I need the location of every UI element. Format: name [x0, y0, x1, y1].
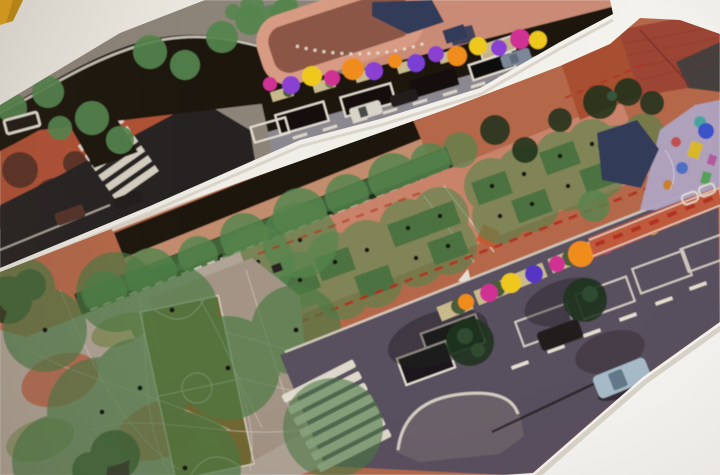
art-shape: [698, 123, 714, 139]
umbrella-dot: [263, 77, 277, 91]
tree-canopy: [347, 252, 403, 308]
umbrella-dot: [302, 66, 322, 86]
umbrella-dot: [510, 29, 530, 49]
tree-canopy: [75, 101, 109, 135]
umbrella-dot: [529, 31, 547, 49]
umbrella-dot: [458, 294, 474, 310]
umbrella-dot: [282, 76, 300, 94]
umbrella-dot: [365, 62, 383, 80]
tree-highlight: [582, 286, 598, 302]
umbrella-dot: [324, 70, 340, 86]
umbrella-dot: [447, 46, 467, 66]
tree-highlight: [471, 343, 485, 357]
tree-canopy: [106, 126, 134, 154]
umbrella-dot: [549, 256, 565, 272]
photo-of-printed-plans: [0, 0, 720, 475]
umbrella-dot: [491, 40, 507, 56]
tree-canopy: [170, 50, 200, 80]
tree-canopy: [32, 76, 64, 108]
tree-canopy: [76, 252, 156, 332]
tree-canopy: [48, 116, 72, 140]
art-shape: [663, 180, 673, 190]
tree-canopy: [206, 21, 238, 53]
art-shape: [676, 162, 688, 174]
tree-highlight: [607, 91, 617, 101]
tree-canopy: [133, 35, 167, 69]
tree-canopy: [578, 190, 610, 222]
yellow-object: [0, 0, 23, 25]
tree-canopy: [442, 132, 478, 168]
umbrella-dot: [428, 46, 444, 62]
umbrella-dot: [525, 265, 543, 283]
plans-scene: [0, 0, 720, 475]
tree-canopy: [0, 278, 24, 302]
umbrella-dot: [388, 54, 402, 68]
umbrella-dot: [480, 284, 498, 302]
umbrella-dot: [469, 37, 487, 55]
art-shape: [671, 137, 681, 147]
tree-highlight: [457, 328, 473, 344]
umbrella-dot: [501, 273, 521, 293]
umbrella-dot: [342, 58, 364, 80]
umbrella-dot: [407, 54, 425, 72]
tree-canopy: [283, 378, 383, 475]
